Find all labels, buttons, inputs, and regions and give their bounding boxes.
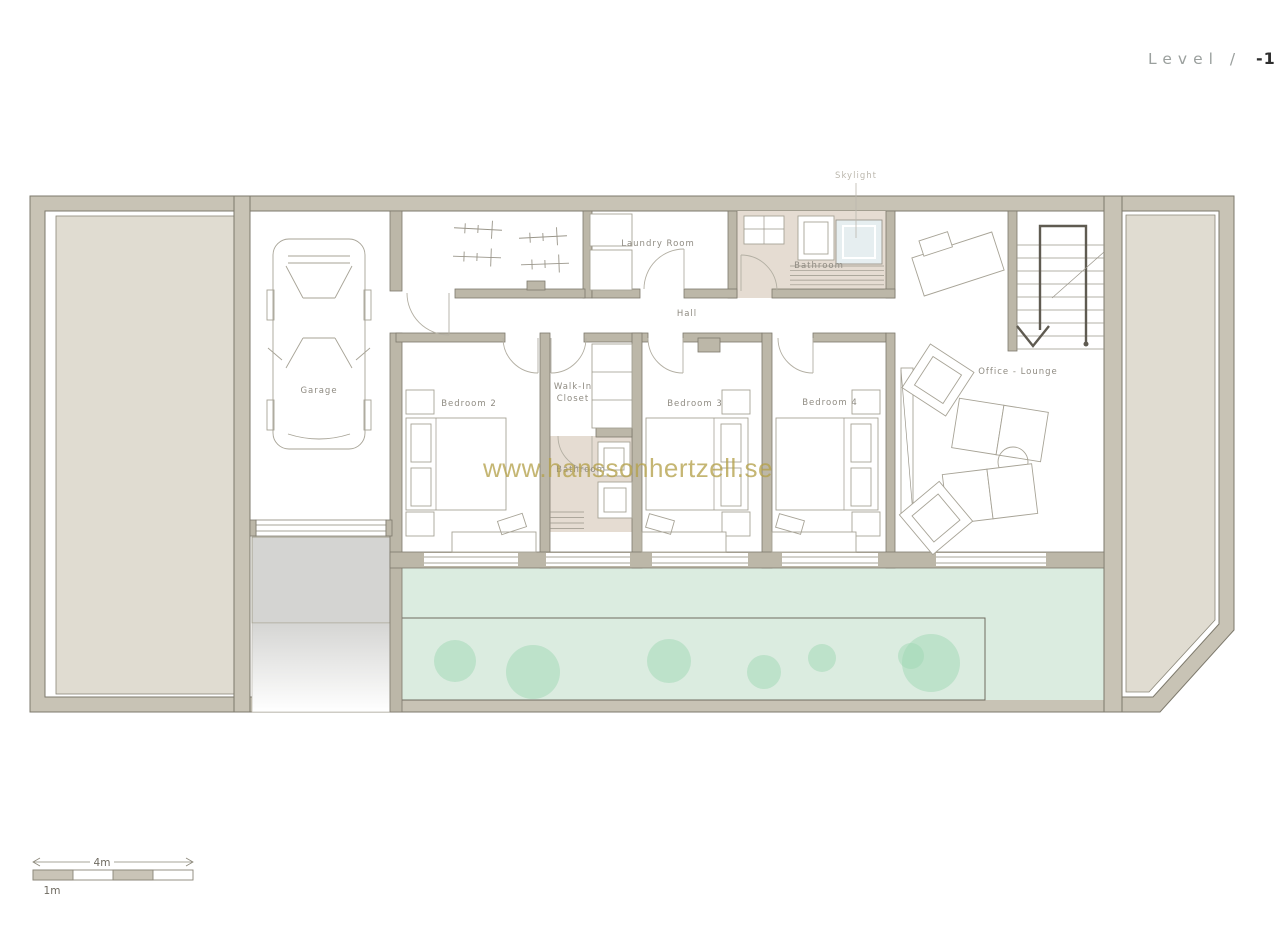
floor-plan-drawing: Garage Laundry Room Bathroom Hall Skylig… bbox=[0, 0, 1280, 933]
window-office bbox=[936, 553, 1046, 566]
desk bbox=[772, 532, 856, 552]
terrace bbox=[400, 566, 1104, 700]
scale-bar: 4m 1m bbox=[33, 857, 193, 897]
level-title-number: -1 bbox=[1256, 49, 1276, 68]
laundry-room-label: Laundry Room bbox=[621, 239, 695, 249]
garage-door bbox=[256, 520, 386, 536]
nightstand bbox=[406, 512, 434, 536]
desk bbox=[452, 532, 536, 552]
window-closet bbox=[546, 553, 630, 566]
watermark: www.hanssonhertzell.se bbox=[482, 453, 773, 483]
office-lounge-label: Office - Lounge bbox=[978, 367, 1058, 377]
driveway bbox=[252, 537, 390, 712]
skylight-label: Skylight bbox=[835, 171, 877, 181]
windows bbox=[424, 553, 1046, 566]
sink bbox=[798, 216, 834, 260]
level-title-label: Level / bbox=[1148, 50, 1241, 68]
floor-plan-page: Garage Laundry Room Bathroom Hall Skylig… bbox=[0, 0, 1280, 933]
hall-label: Hall bbox=[677, 309, 697, 319]
bedroom3-label: Bedroom 3 bbox=[667, 399, 723, 409]
desk bbox=[642, 532, 726, 552]
window-bedroom3 bbox=[652, 553, 748, 566]
walk-in-closet-label-line2: Closet bbox=[557, 394, 590, 404]
scale-major-label: 4m bbox=[94, 857, 111, 869]
window-bedroom2 bbox=[424, 553, 518, 566]
scale-minor-label: 1m bbox=[44, 885, 61, 897]
stair-rail-post bbox=[1084, 342, 1089, 347]
laundry-appliances bbox=[590, 214, 632, 290]
terrain-left bbox=[56, 216, 234, 694]
garage-label: Garage bbox=[300, 386, 337, 396]
window-bedroom4 bbox=[782, 553, 878, 566]
walk-in-closet-label-line1: Walk-In bbox=[554, 382, 592, 392]
skylight-window bbox=[836, 220, 882, 264]
bedroom2-label: Bedroom 2 bbox=[441, 399, 497, 409]
wardrobe bbox=[592, 344, 632, 428]
nightstand bbox=[722, 390, 750, 414]
bedroom4-label: Bedroom 4 bbox=[802, 398, 858, 408]
bathroom-label: Bathroom bbox=[794, 261, 844, 271]
ensuite-toilet bbox=[598, 482, 632, 518]
nightstand bbox=[406, 390, 434, 414]
bed bbox=[776, 418, 878, 510]
toilet bbox=[744, 216, 784, 244]
terrain-right bbox=[1126, 215, 1215, 692]
